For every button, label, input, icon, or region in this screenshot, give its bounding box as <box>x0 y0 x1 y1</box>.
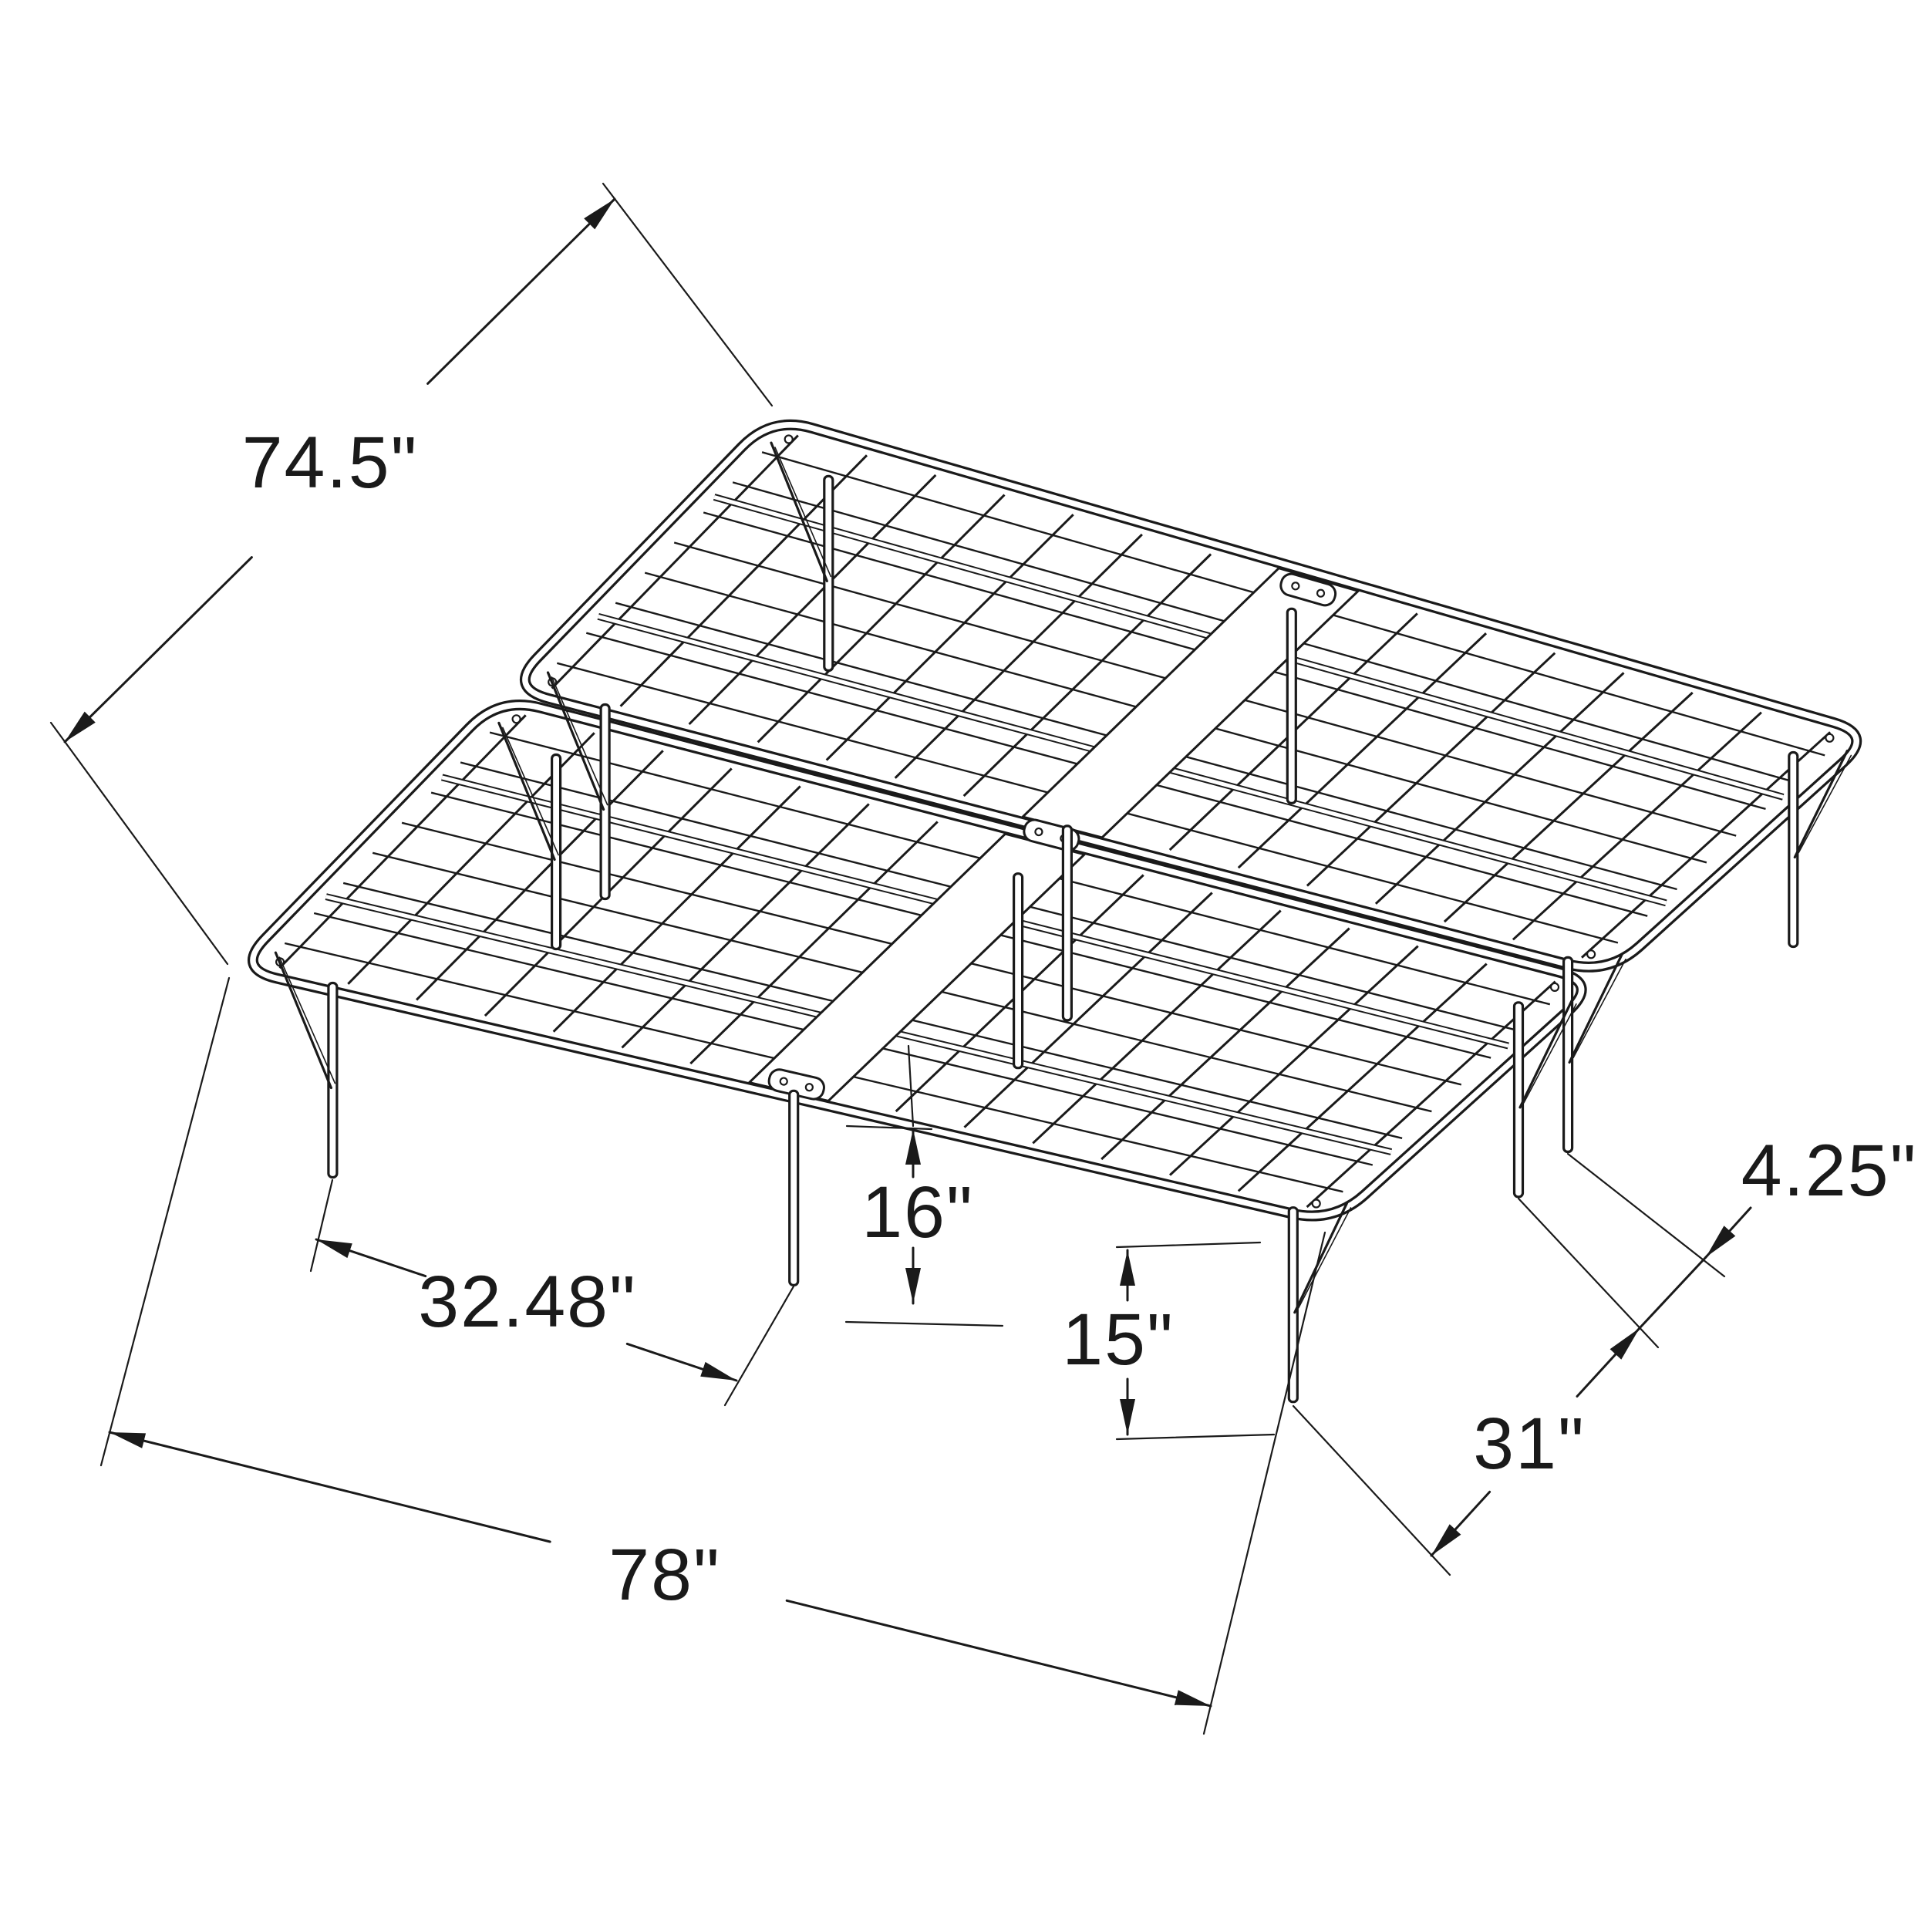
bed-frame-diagram: 74.5" 78" 32.48" 16" 15" 31" 4.25" <box>0 0 1928 1928</box>
dimension-label-side-leg-spacing: 31" <box>1473 1403 1585 1485</box>
dimension-label-frame-width: 74.5" <box>242 422 419 504</box>
dimension-label-leg-spacing: 32.48" <box>418 1261 636 1343</box>
dimension-label-frame-length: 78" <box>608 1534 720 1616</box>
dimension-label-frame-height: 16" <box>861 1172 973 1253</box>
dimension-label-under-clearance: 15" <box>1062 1299 1174 1381</box>
diagram-canvas: 74.5" 78" 32.48" 16" 15" 31" 4.25" <box>0 0 1928 1932</box>
dimension-label-leg-pair-gap: 4.25" <box>1741 1130 1918 1212</box>
